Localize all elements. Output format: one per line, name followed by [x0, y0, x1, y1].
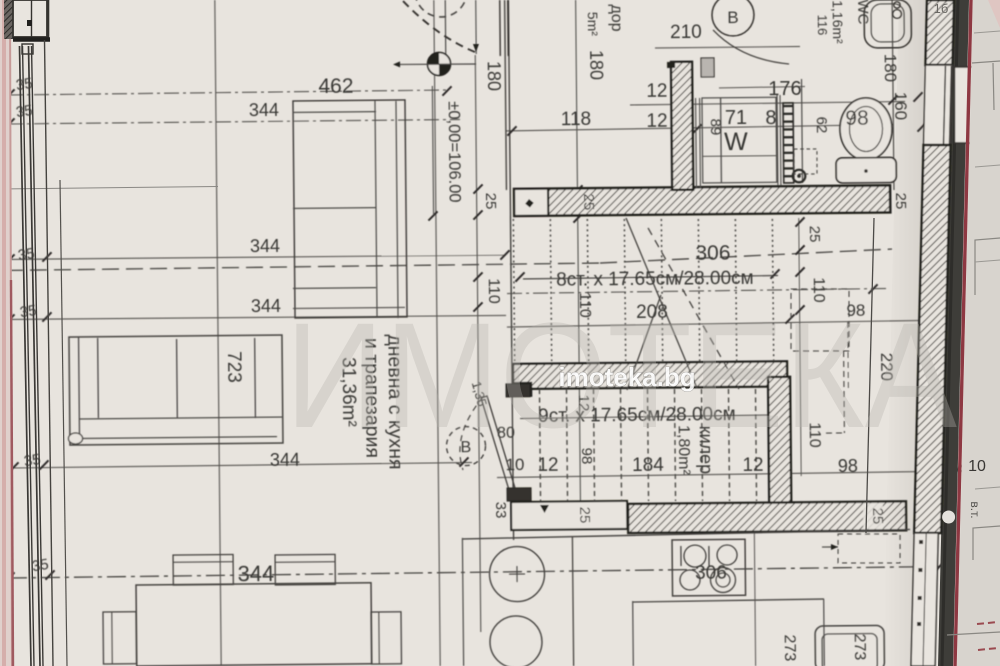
svg-text:±0,00=106.00: ±0,00=106.00 [444, 101, 463, 202]
svg-text:35: 35 [19, 302, 38, 321]
svg-text:W: W [724, 128, 748, 156]
svg-text:В: В [727, 8, 739, 27]
svg-text:116: 116 [815, 14, 830, 35]
svg-text:imoteka.bg: imoteka.bg [558, 362, 695, 392]
svg-text:в.т.: в.т. [968, 501, 982, 518]
svg-text:1,16m²: 1,16m² [830, 0, 846, 44]
svg-text:344: 344 [250, 236, 280, 256]
svg-text:12: 12 [646, 111, 667, 132]
svg-text:273: 273 [781, 635, 798, 662]
svg-text:12: 12 [646, 81, 667, 102]
svg-text:71: 71 [725, 107, 747, 129]
svg-text:462: 462 [318, 75, 353, 98]
svg-text:176: 176 [768, 78, 802, 100]
svg-text:723: 723 [223, 351, 244, 383]
svg-text:35: 35 [31, 556, 50, 575]
svg-text:25: 25 [576, 507, 593, 524]
svg-text:25: 25 [580, 194, 597, 211]
svg-text:5m²: 5m² [585, 12, 601, 37]
svg-text:25: 25 [482, 193, 499, 210]
svg-text:344: 344 [237, 561, 274, 586]
svg-text:25: 25 [869, 508, 886, 525]
svg-text:8: 8 [765, 107, 776, 129]
svg-text:344: 344 [251, 296, 281, 316]
svg-text:WC: WC [854, 0, 871, 25]
svg-text:8ст. x 17.65см/28.00см: 8ст. x 17.65см/28.00см [556, 268, 754, 291]
svg-text:273: 273 [851, 634, 868, 661]
svg-text:62: 62 [813, 116, 830, 133]
svg-text:118: 118 [561, 109, 591, 130]
svg-text:306: 306 [695, 563, 727, 584]
svg-text:210: 210 [670, 22, 702, 43]
svg-text:1б: 1б [934, 1, 949, 16]
svg-text:33: 33 [492, 502, 509, 519]
svg-text:89: 89 [707, 119, 724, 136]
svg-text:10: 10 [968, 458, 986, 475]
svg-text:35: 35 [15, 75, 34, 94]
svg-text:25: 25 [806, 226, 823, 243]
svg-text:306: 306 [695, 242, 730, 265]
svg-text:180: 180 [484, 61, 504, 91]
svg-text:98: 98 [845, 107, 869, 130]
svg-text:344: 344 [249, 100, 279, 120]
svg-text:дор: дор [608, 4, 625, 31]
svg-text:180: 180 [586, 50, 606, 80]
